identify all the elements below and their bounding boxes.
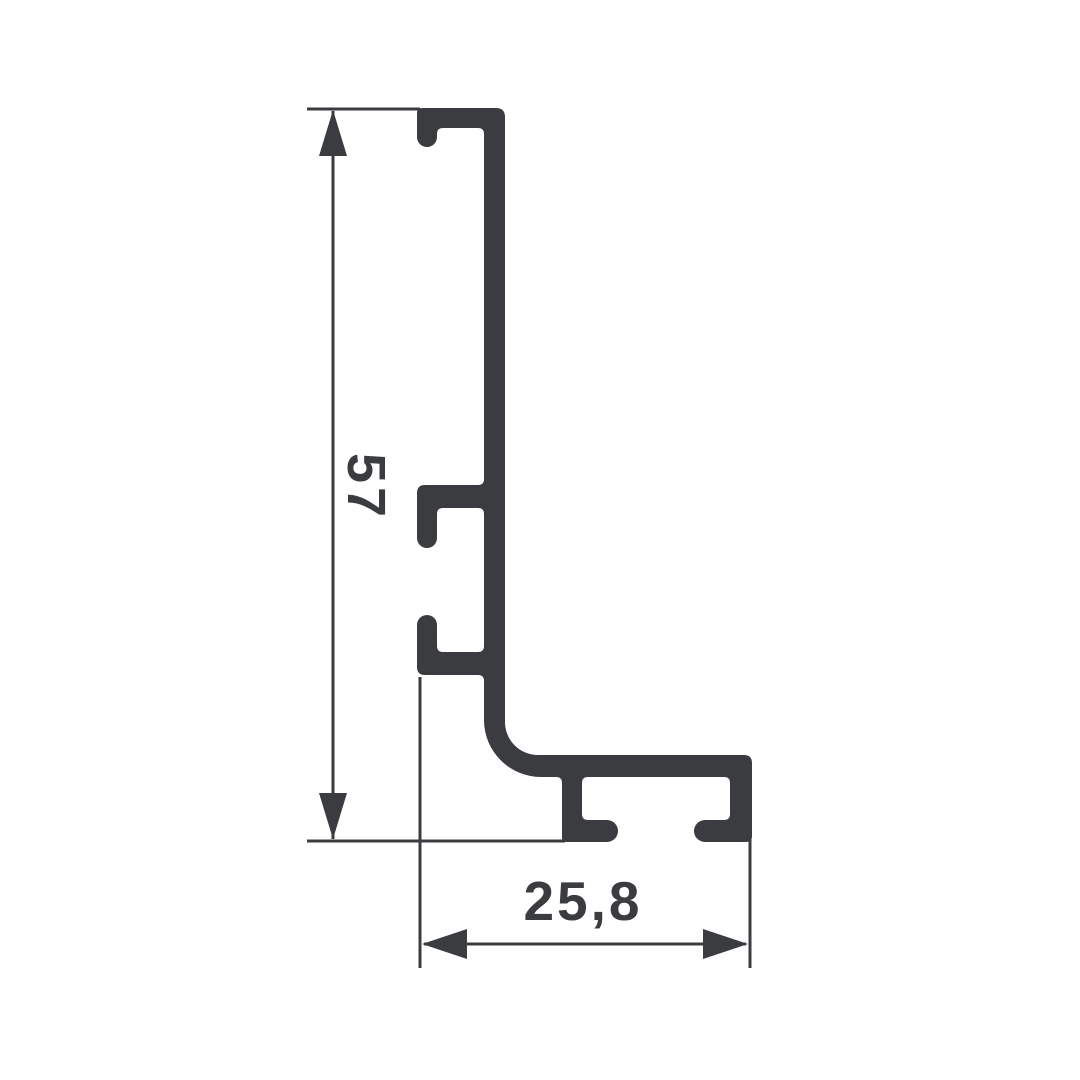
vertical-dimension-label: 57	[336, 453, 396, 521]
dimension-arrows	[319, 110, 748, 959]
arrow-left-icon	[422, 929, 467, 959]
horizontal-dimension-label: 25,8	[523, 870, 642, 932]
arrow-down-icon	[319, 793, 347, 839]
dimension-lines	[307, 109, 750, 968]
drawing-canvas: 57 25,8	[0, 0, 1080, 1080]
profile-drawing: 57 25,8	[0, 0, 1080, 1080]
arrow-right-icon	[703, 929, 748, 959]
profile-cross-section	[417, 108, 752, 842]
arrow-up-icon	[319, 110, 347, 156]
